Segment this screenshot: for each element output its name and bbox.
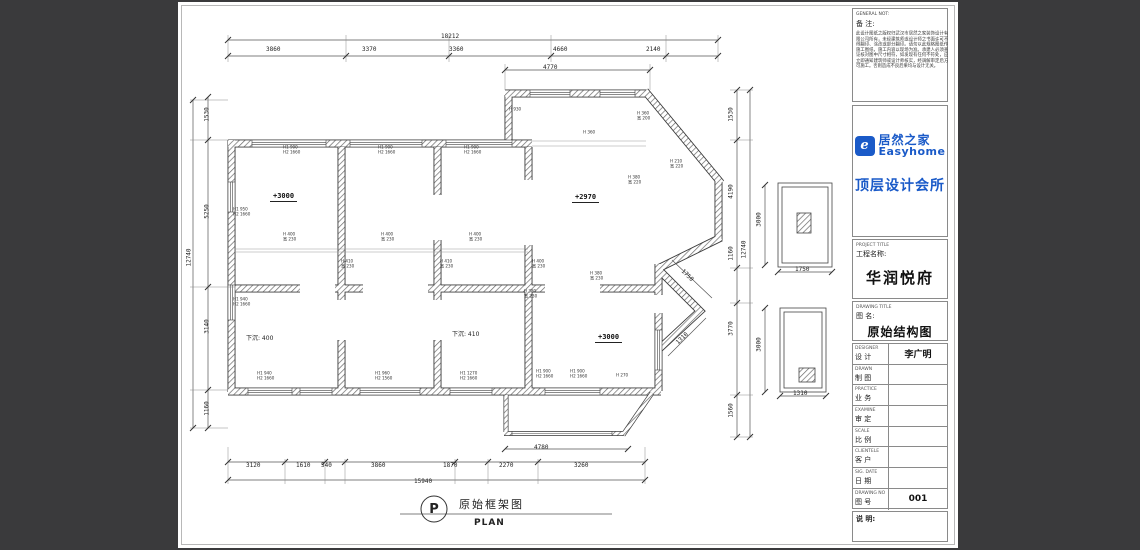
plan-caption-title: 原始框架图 [459, 496, 524, 512]
dimension-label: 1870 [443, 462, 457, 469]
general-notes-heading: GENERAL NOT: [856, 11, 922, 16]
drawing-sheet: 1821238603370336046602140477031201610540… [178, 2, 958, 548]
annotation-note: H1 900 H2 1660 [570, 370, 587, 379]
project-title-label-en: PROJECT TITLE [856, 242, 922, 247]
dimension-label: 2140 [646, 46, 660, 53]
dimension-label: 1750 [795, 266, 809, 273]
signature-row: SCALE 比 例 [853, 427, 947, 448]
dimension-label: 18212 [441, 33, 459, 40]
annotation-note: H 400 宽 230 [469, 233, 482, 242]
annotation-note: H1 900 H2 1660 [378, 146, 395, 155]
dimension-label: 12740 [741, 240, 748, 258]
dimension-label: 1160 [204, 401, 211, 415]
annotation-note: H1 1270 H2 1660 [460, 372, 477, 381]
note-label: 备 注: [856, 19, 944, 29]
dimension-label: 3260 [574, 462, 588, 469]
signature-row: DRAWN 制 图 [853, 365, 947, 386]
dimension-label: 12740 [186, 248, 193, 266]
general-notes-section: GENERAL NOT: 备 注: 此设计图纸之版权归武汉市居然之家装饰设计有限… [852, 8, 948, 102]
dimension-label: 4780 [534, 444, 548, 451]
cad-viewport: 1821238603370336046602140477031201610540… [0, 0, 1140, 550]
annotation-note: H 400 宽 230 [381, 233, 394, 242]
signature-table: DESIGNER 设 计 李广明 DRAWN 制 图 PRACTICE [852, 343, 948, 509]
dimension-label: 3360 [449, 46, 463, 53]
annotation-note: H1 940 H2 1660 [257, 372, 274, 381]
dimension-label: 4190 [728, 184, 735, 198]
brand-section: e 居然之家 Easyhome 顶层设计会所 [852, 105, 948, 237]
signature-value [889, 427, 947, 447]
dimension-label: 3860 [371, 462, 385, 469]
plan-caption-letter: P [425, 502, 443, 517]
door-openings [300, 180, 663, 340]
annotation-note: H 360 宽 200 [637, 112, 650, 121]
annotation-note: H 360 [583, 131, 595, 135]
drawing-title-label-en: DRAWING TITLE [856, 304, 922, 309]
annotation-note: H 400 宽 230 [283, 233, 296, 242]
drawing-title-label-cn: 图 名: [856, 311, 944, 321]
dimension-label: 3770 [728, 321, 735, 335]
annotation-note: H 930 [509, 108, 521, 112]
signature-value [889, 385, 947, 405]
note-text: 此设计图纸之版权归武汉市居然之家装饰设计有限公司所有，未经建筑师或设计师之书面许… [856, 31, 948, 69]
dimension-label: 4770 [543, 64, 557, 71]
signature-value [889, 447, 947, 467]
shafts [778, 183, 832, 392]
dimension-label: 2270 [499, 462, 513, 469]
dimension-label: 4660 [553, 46, 567, 53]
dimension-label: 3120 [246, 462, 260, 469]
signature-value [889, 365, 947, 385]
annotation-note: H1 900 H2 1660 [283, 146, 300, 155]
annotation-note: H 210 宽 220 [670, 160, 683, 169]
remark-section: 说 明: [852, 511, 948, 542]
dimension-label: 3000 [756, 337, 763, 351]
dimension-label: 3000 [756, 212, 763, 226]
annotation-note: H1 900 H2 1660 [536, 370, 553, 379]
brand-name-en: Easyhome [879, 146, 946, 157]
sunken-label: 下沉: 410 [452, 329, 479, 338]
annotation-note: H1 940 H2 1660 [233, 298, 250, 307]
annotation-note: H 410 宽 230 [341, 260, 354, 269]
signature-row: CLIENTELE 客 户 [853, 447, 947, 468]
annotation-note: H1 960 H2 1560 [375, 372, 392, 381]
studio-name: 顶层设计会所 [853, 175, 947, 195]
sunken-label: 下沉: 400 [246, 333, 273, 342]
project-name: 华润悦府 [856, 267, 944, 288]
project-title-section: PROJECT TITLE 工程名称: 华润悦府 [852, 239, 948, 299]
signature-row: PRACTICE 业 务 [853, 385, 947, 406]
dimension-label: 540 [321, 462, 332, 469]
signature-row: DRAWING NO 图 号 001 [853, 489, 947, 510]
annotation-note: H 380 宽 230 [524, 290, 537, 299]
easyhome-logo-icon: e [855, 136, 875, 156]
annotation-note: H 380 宽 220 [628, 176, 641, 185]
dimension-label: 1610 [296, 462, 310, 469]
project-title-label-cn: 工程名称: [856, 249, 944, 259]
dimension-label: 1530 [728, 107, 735, 121]
balcony-walls [504, 393, 652, 435]
signature-row: DESIGNER 设 计 李广明 [853, 344, 947, 365]
drawing-title-section: DRAWING TITLE 图 名: 原始结构图 [852, 301, 948, 341]
remark-label: 说 明: [856, 514, 944, 524]
annotation-note: H 410 宽 230 [440, 260, 453, 269]
signature-row: EXAMINE 审 定 [853, 406, 947, 427]
elevation-label: +3000 [595, 333, 622, 343]
dimension-label: 1530 [204, 107, 211, 121]
dimension-label: 1310 [793, 390, 807, 397]
dimension-label: 3140 [204, 319, 211, 333]
elevation-label: +3000 [270, 192, 297, 202]
annotation-note: H1 950 H2 1660 [233, 208, 250, 217]
dimension-label: 1160 [728, 246, 735, 260]
signature-value [889, 468, 947, 488]
signature-value: 李广明 [889, 344, 947, 364]
annotation-note: H 270 [616, 374, 628, 378]
signature-value: 001 [889, 489, 947, 510]
dimension-label: 3370 [362, 46, 376, 53]
signature-row: SIG. DATE 日 期 [853, 468, 947, 489]
drawing-name: 原始结构图 [856, 323, 944, 340]
floor-plan-geometry [178, 2, 958, 548]
plan-caption-subtitle: PLAN [474, 518, 505, 528]
dimension-label: 5250 [204, 204, 211, 218]
dimension-label: 1560 [728, 403, 735, 417]
annotation-note: H1 900 H2 1660 [464, 146, 481, 155]
signature-value [889, 406, 947, 426]
title-block: GENERAL NOT: 备 注: 此设计图纸之版权归武汉市居然之家装饰设计有限… [850, 6, 950, 544]
dimension-label: 3860 [266, 46, 280, 53]
annotation-note: H 380 宽 230 [590, 272, 603, 281]
annotation-note: H 400 宽 230 [532, 260, 545, 269]
dimension-label: 15940 [414, 478, 432, 485]
elevation-label: +2970 [572, 193, 599, 203]
